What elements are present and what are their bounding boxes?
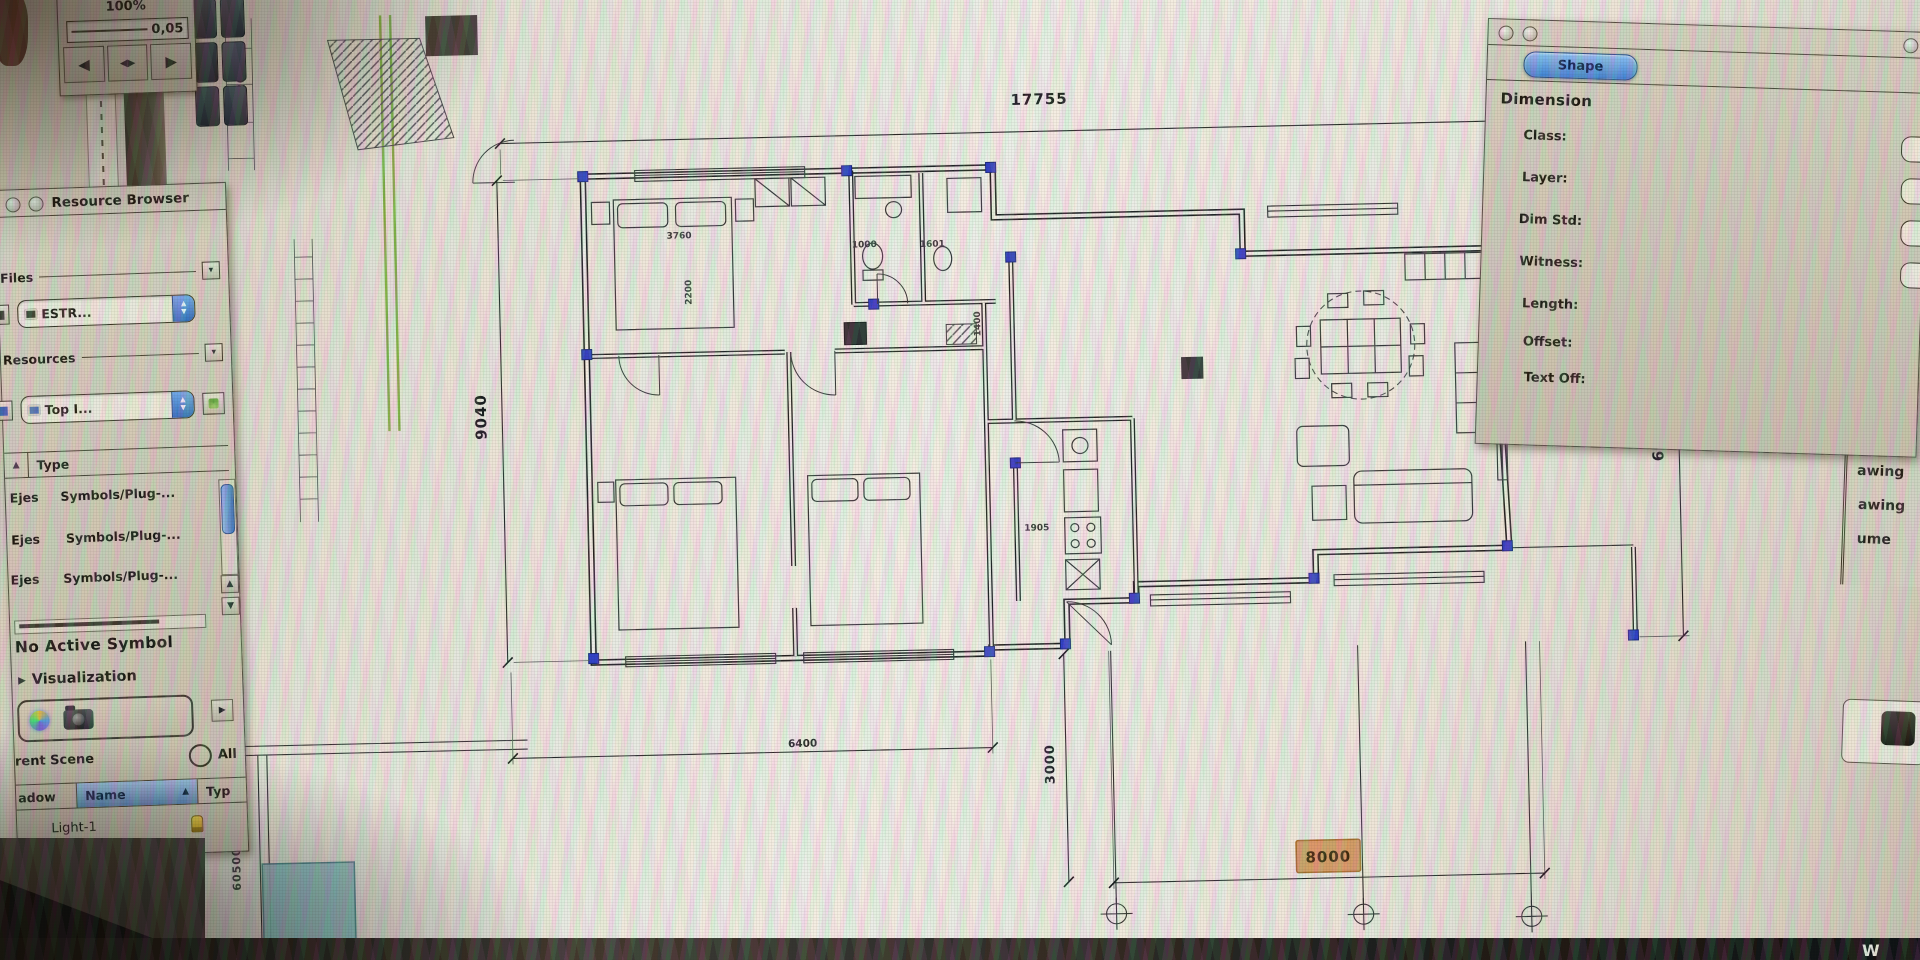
- bottom-bar-fragment: W: [1862, 941, 1880, 960]
- dim-label-3760[interactable]: 3760: [666, 231, 691, 242]
- palette-close-button[interactable]: [5, 197, 21, 213]
- visualization-more-icon: ▶: [219, 705, 226, 715]
- files-label: Files: [0, 269, 33, 285]
- all-radio[interactable]: [188, 744, 212, 768]
- dim-std-field-label: Dim Std:: [1518, 212, 1582, 229]
- tab-shape[interactable]: Shape: [1523, 51, 1638, 81]
- layer-field-label: Layer:: [1522, 170, 1568, 186]
- corner-spot: [0, 0, 28, 66]
- files-combo[interactable]: ESTR... ▲ ▼: [17, 294, 196, 328]
- resource-row[interactable]: Ejes Symbols/Plug-...: [10, 567, 178, 588]
- resource-row-name: Ejes: [10, 490, 39, 506]
- palette-collapse-button[interactable]: [28, 196, 44, 212]
- list-vscrollbar[interactable]: [218, 479, 238, 576]
- resource-row-type: Symbols/Plug-...: [63, 567, 178, 586]
- pan-center-button[interactable]: ◀ ▶: [107, 44, 149, 81]
- current-scene-label: rent Scene: [15, 752, 95, 770]
- resource-row-type: Symbols/Plug-...: [66, 527, 181, 546]
- palette-close-button[interactable]: [1498, 25, 1513, 40]
- dim-label-6400[interactable]: 6400: [788, 738, 817, 751]
- layer-combo[interactable]: [1900, 178, 1920, 207]
- resource-row[interactable]: Ejes Symbols/Plug-...: [11, 527, 181, 548]
- light-row-name: Light-1: [51, 816, 191, 836]
- shadow-column-header[interactable]: adow: [16, 788, 76, 805]
- dim-std-combo[interactable]: [1900, 220, 1920, 249]
- resources-combo-stepper[interactable]: ▲ ▼: [171, 391, 194, 418]
- dim-terrace-depth: 3000: [1041, 649, 1074, 888]
- dim-label-1000[interactable]: 1000: [852, 240, 877, 251]
- resource-row-type: Symbols/Plug-...: [60, 485, 175, 504]
- class-field-label: Class:: [1523, 128, 1567, 144]
- tool-button[interactable]: [220, 0, 245, 38]
- dim-label-3000[interactable]: 3000: [1043, 744, 1059, 785]
- name-column-header[interactable]: Name ▲: [76, 779, 199, 807]
- object-info-palette: Shape Dimension Class: Layer: Dim Std: W…: [1475, 18, 1920, 458]
- visualization-more-button[interactable]: ▶: [211, 699, 234, 722]
- files-combo-value: ESTR...: [37, 301, 172, 321]
- sort-asc-icon[interactable]: ▲: [4, 460, 27, 471]
- ruler-strips: [225, 13, 488, 524]
- visualization-header[interactable]: Visualization: [32, 668, 138, 688]
- tool-button[interactable]: [195, 86, 220, 127]
- palette-collapse-button[interactable]: [1522, 26, 1537, 41]
- tool-button[interactable]: [221, 41, 246, 82]
- name-column-label: Name: [85, 786, 126, 802]
- tool-buttons-fragment: [188, 0, 253, 131]
- hscroll-thumb[interactable]: [19, 620, 159, 629]
- vscroll-thumb[interactable]: [220, 484, 235, 534]
- files-menu-arrow-icon: ▾: [209, 265, 214, 275]
- type-column-header-2[interactable]: Typ: [198, 782, 246, 799]
- zoom-percent: 100%: [57, 0, 194, 16]
- light-bulb-icon: [191, 815, 204, 832]
- dim-label-9040[interactable]: 9040: [472, 394, 491, 440]
- dim-label-17755[interactable]: 17755: [1010, 90, 1068, 109]
- entry-door-arc: [472, 140, 515, 183]
- stepper-down-icon: ▼: [180, 404, 186, 412]
- new-resource-icon: [208, 398, 218, 408]
- dim-label-8000[interactable]: 8000: [1305, 847, 1351, 866]
- dim-bottom-left: 6400: [506, 659, 998, 764]
- vscroll-down-button[interactable]: ▼: [221, 597, 240, 616]
- dim-label-2200[interactable]: 2200: [684, 280, 695, 305]
- vscroll-down-icon: ▼: [227, 601, 234, 611]
- vscroll-up-button[interactable]: ▲: [221, 575, 240, 594]
- name-sort-icon: ▲: [182, 787, 189, 797]
- list-item[interactable]: awing: [1857, 463, 1905, 481]
- pan-center-right-icon: ▶: [127, 57, 135, 68]
- vscroll-up-icon: ▲: [226, 579, 233, 589]
- resources-menu-button[interactable]: ▾: [204, 343, 223, 362]
- visualization-disclosure-icon[interactable]: ▶: [18, 675, 26, 686]
- bottom-strip: [0, 938, 1920, 960]
- files-combo-stepper[interactable]: ▲ ▼: [172, 295, 195, 322]
- no-active-symbol-text: No Active Symbol: [15, 633, 174, 657]
- type-column-header[interactable]: Type: [28, 456, 69, 472]
- edge-widget-icon[interactable]: [1881, 711, 1916, 746]
- resource-row-name: Ejes: [11, 532, 40, 548]
- witness-field-label: Witness:: [1519, 254, 1583, 271]
- palette-extra-button[interactable]: [1903, 38, 1918, 53]
- witness-combo[interactable]: [1900, 262, 1920, 291]
- class-combo[interactable]: [1901, 136, 1920, 165]
- list-hscrollbar[interactable]: [14, 614, 206, 635]
- files-menu-button[interactable]: ▾: [202, 261, 221, 280]
- dim-label-1905[interactable]: 1905: [1024, 523, 1049, 534]
- panel-title: Dimension: [1500, 89, 1592, 110]
- dim-label-1601[interactable]: 1601: [920, 239, 945, 250]
- pan-right-icon: ▶: [165, 52, 177, 70]
- layer-icon: [28, 404, 41, 415]
- windows: [615, 151, 1512, 667]
- scale-value[interactable]: 0,05: [151, 20, 188, 36]
- camera-icon[interactable]: [63, 709, 94, 730]
- pan-left-button[interactable]: ◀: [63, 46, 105, 83]
- scale-slider-line[interactable]: [71, 28, 147, 33]
- edge-widget-fragment: [1841, 699, 1920, 766]
- resource-tool-icon[interactable]: [0, 400, 13, 421]
- dim-left-height: 9040: [467, 174, 590, 668]
- tool-button[interactable]: [223, 85, 248, 126]
- visualization-toolbar: [17, 694, 194, 742]
- length-field-label: Length:: [1522, 296, 1579, 313]
- dim-label-1400[interactable]: 1400: [973, 311, 984, 336]
- terrace-grid: [1095, 641, 1548, 942]
- resources-combo-value: Top I...: [40, 397, 171, 417]
- list-item[interactable]: awing: [1858, 497, 1906, 515]
- resource-row[interactable]: Ejes Symbols/Plug-...: [10, 485, 176, 506]
- new-resource-button[interactable]: [202, 392, 225, 415]
- file-icon: [24, 308, 37, 319]
- dim-selected-8000[interactable]: 8000: [1104, 641, 1550, 889]
- stepper-down-icon: ▼: [181, 308, 187, 316]
- furniture: [591, 162, 1501, 630]
- offset-field-label: Offset:: [1523, 334, 1573, 351]
- resource-row-name: Ejes: [10, 572, 39, 588]
- monitor-photo: 620000 610000 605000: [0, 0, 1920, 960]
- resources-label: Resources: [3, 350, 76, 368]
- resource-browser-palette: Resource Browser Files ▾ ESTR... ▲ ▼ Res…: [0, 182, 249, 860]
- resources-combo[interactable]: Top I... ▲ ▼: [20, 390, 195, 424]
- pan-left-icon: ◀: [78, 55, 90, 73]
- text-off-field-label: Text Off:: [1523, 370, 1585, 387]
- resource-browser-title: Resource Browser: [51, 190, 189, 211]
- view-nav-widget: 100% 0,05 ◀ ◀ ▶ ▶: [56, 0, 197, 96]
- all-label: All: [212, 747, 237, 763]
- scale-field[interactable]: 0,05: [66, 17, 189, 43]
- resources-menu-arrow-icon: ▾: [211, 347, 216, 357]
- render-effects-icon[interactable]: [29, 710, 50, 731]
- list-item[interactable]: ume: [1857, 531, 1892, 548]
- file-tool-icon[interactable]: [0, 305, 10, 326]
- pan-right-button[interactable]: ▶: [150, 43, 192, 80]
